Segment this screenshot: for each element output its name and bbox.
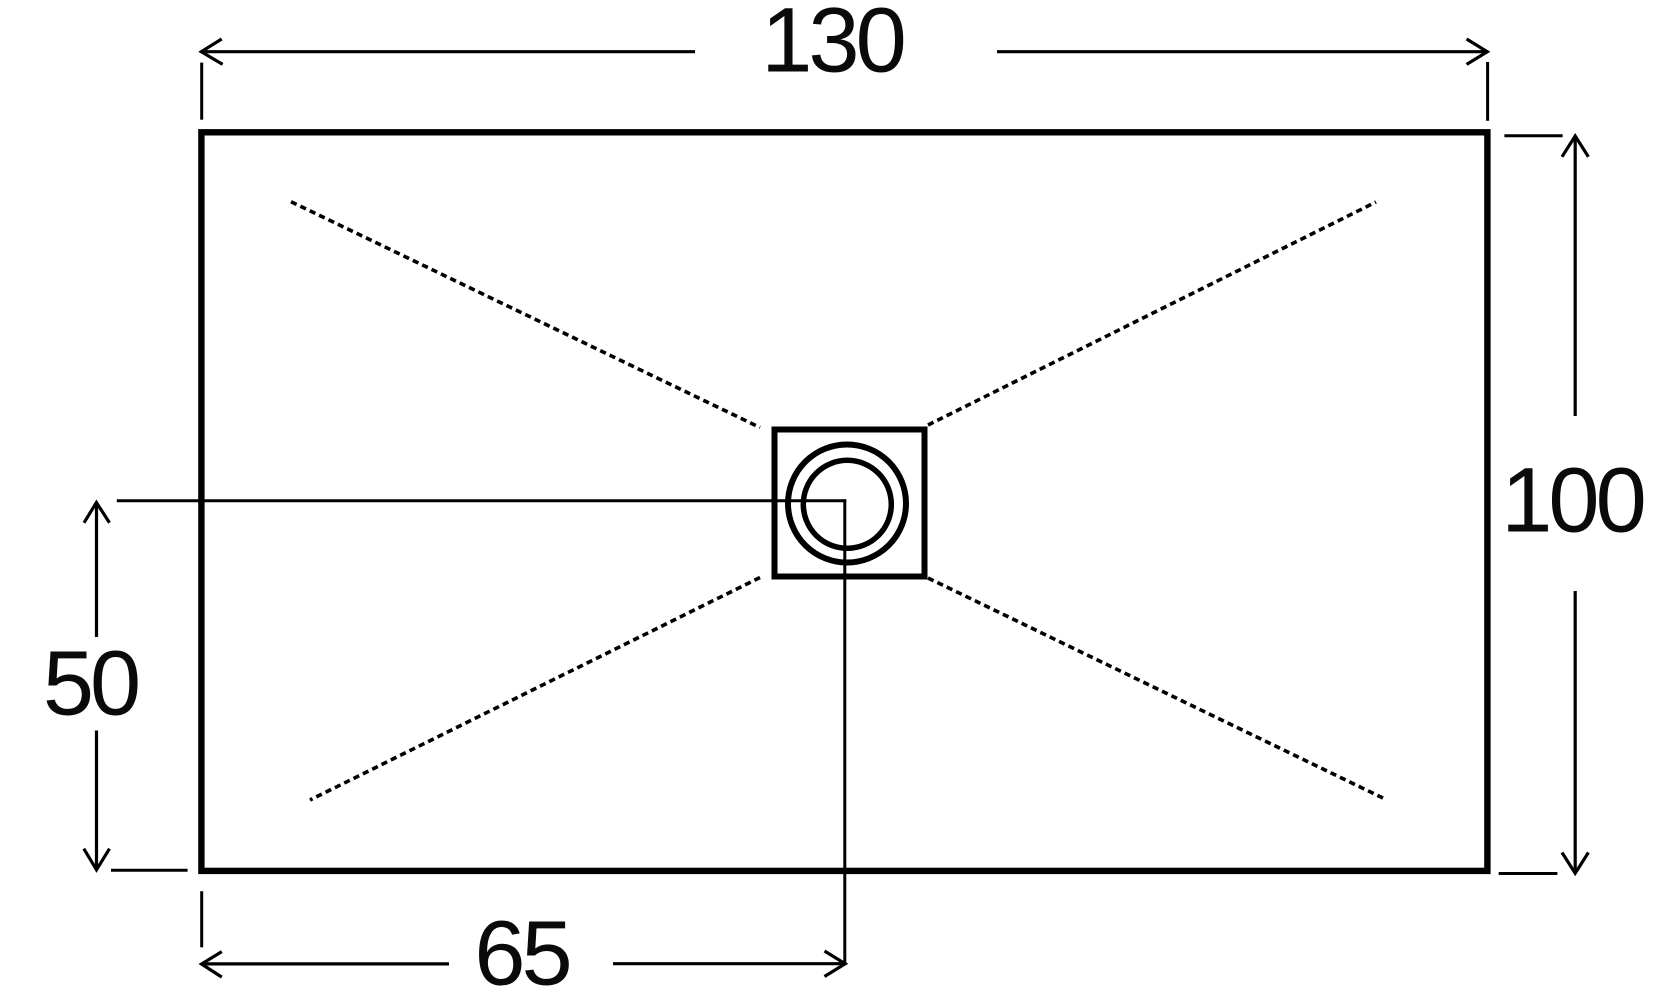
- svg-text:100: 100: [1501, 450, 1643, 552]
- svg-text:50: 50: [43, 632, 138, 734]
- svg-text:65: 65: [474, 903, 569, 1000]
- svg-text:130: 130: [761, 0, 903, 92]
